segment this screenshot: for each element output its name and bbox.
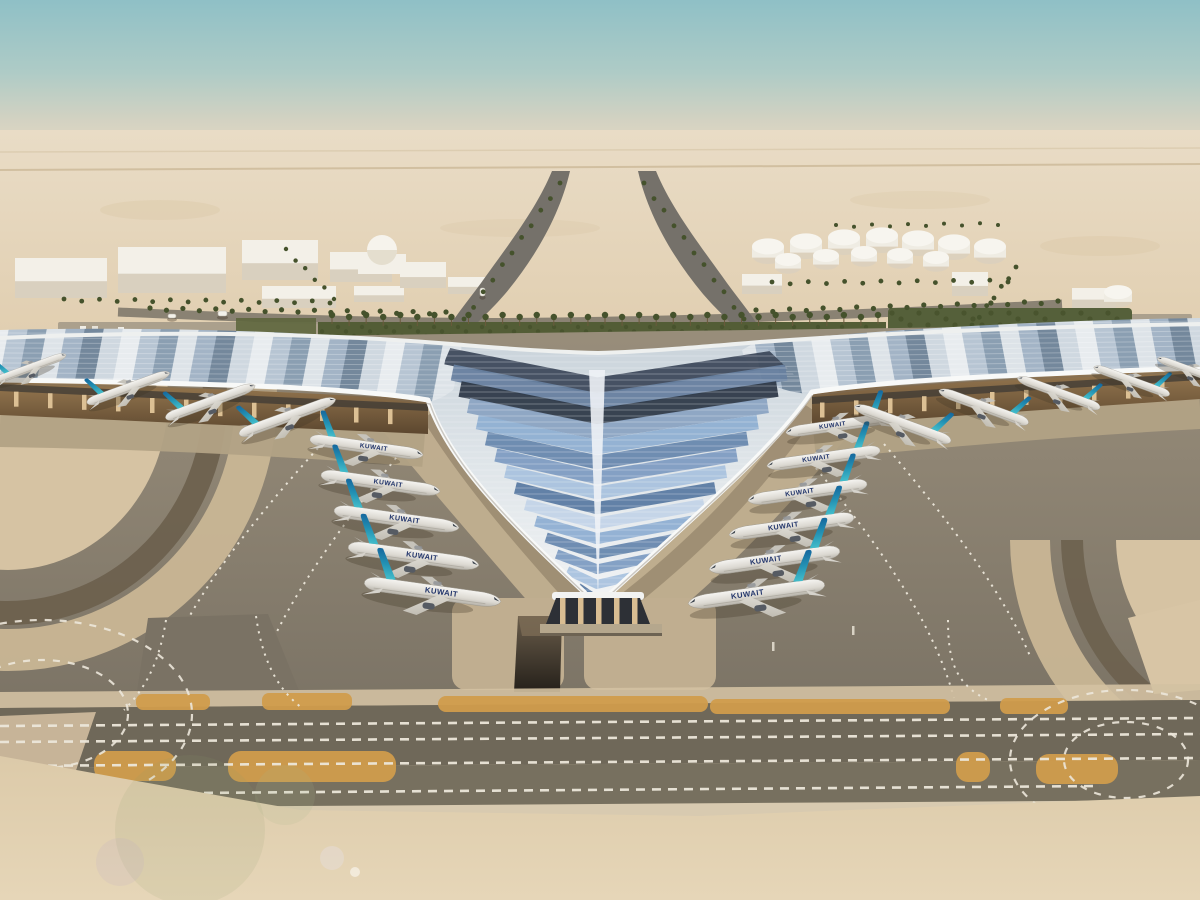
palm-tree bbox=[203, 298, 208, 303]
palm-tree bbox=[732, 305, 737, 310]
palm-tree bbox=[1022, 299, 1027, 304]
palm-tree bbox=[97, 297, 102, 302]
palm-tree bbox=[312, 308, 317, 313]
palm-tree bbox=[712, 278, 717, 283]
palm-tree bbox=[1039, 301, 1044, 306]
palm-tree bbox=[411, 309, 416, 314]
palm-tree bbox=[150, 299, 155, 304]
fuel-tank bbox=[851, 246, 877, 267]
warehouse-building bbox=[742, 274, 782, 294]
orange-taxiway-marking bbox=[262, 693, 352, 710]
palm-tree bbox=[662, 208, 667, 213]
palm-tree bbox=[221, 300, 226, 305]
service-vehicle bbox=[217, 311, 228, 320]
palm-tree bbox=[938, 304, 943, 309]
warehouse-building bbox=[15, 258, 107, 298]
palm-tree bbox=[942, 222, 946, 226]
palm-tree bbox=[481, 289, 486, 294]
palm-tree bbox=[332, 297, 336, 301]
palm-tree bbox=[328, 310, 333, 315]
palm-tree bbox=[888, 224, 892, 228]
palm-tree bbox=[310, 298, 315, 303]
palm-tree bbox=[770, 309, 775, 314]
palm-tree bbox=[687, 314, 693, 320]
orange-taxiway-marking bbox=[1000, 698, 1068, 714]
palm-tree bbox=[499, 312, 505, 318]
palm-tree bbox=[996, 223, 1000, 227]
palm-tree bbox=[824, 281, 829, 286]
palm-tree bbox=[213, 306, 218, 311]
palm-tree bbox=[653, 314, 659, 320]
fuel-tank bbox=[1104, 285, 1132, 307]
palm-tree bbox=[987, 278, 992, 283]
palm-tree bbox=[988, 300, 993, 305]
palm-tree bbox=[821, 305, 826, 310]
palm-tree bbox=[62, 297, 67, 302]
palm-tree bbox=[879, 279, 884, 284]
palm-tree bbox=[972, 303, 977, 308]
palm-tree bbox=[346, 314, 352, 320]
palm-tree bbox=[670, 312, 676, 318]
palm-tree bbox=[79, 299, 84, 304]
palm-tree bbox=[789, 314, 795, 320]
fuel-tank bbox=[887, 248, 913, 269]
palm-tree bbox=[443, 309, 448, 314]
bollard bbox=[772, 642, 775, 651]
palm-tree bbox=[414, 314, 420, 320]
palm-tree bbox=[933, 280, 938, 285]
palm-tree bbox=[239, 298, 244, 303]
palm-tree bbox=[180, 306, 185, 311]
palm-tree bbox=[787, 306, 792, 311]
canopy-column bbox=[48, 393, 53, 408]
palm-tree bbox=[133, 297, 138, 302]
palm-tree bbox=[147, 305, 152, 310]
palm-tree bbox=[842, 279, 847, 284]
palm-tree bbox=[551, 314, 557, 320]
palm-tree bbox=[742, 317, 747, 322]
palm-tree bbox=[955, 301, 960, 306]
palm-tree bbox=[984, 303, 989, 308]
palm-tree bbox=[482, 314, 488, 320]
fuel-tank bbox=[813, 249, 839, 270]
palm-tree bbox=[721, 314, 727, 320]
palm-tree bbox=[558, 181, 563, 186]
palm-tree bbox=[427, 311, 432, 316]
canopy-column bbox=[888, 398, 893, 413]
canopy-column bbox=[922, 396, 927, 411]
palm-tree bbox=[313, 278, 317, 282]
palm-tree bbox=[246, 307, 251, 312]
canopy-column bbox=[150, 398, 155, 413]
palm-tree bbox=[992, 296, 997, 301]
palm-tree bbox=[529, 223, 534, 228]
canopy-column bbox=[82, 395, 87, 410]
palm-tree bbox=[888, 303, 893, 308]
palm-tree bbox=[636, 312, 642, 318]
palm-tree bbox=[1005, 302, 1010, 307]
palm-tree bbox=[871, 306, 876, 311]
airport-rendering: Aerial rendering of a desert airport: tr… bbox=[0, 0, 1200, 900]
palm-tree bbox=[602, 312, 608, 318]
palm-tree bbox=[380, 314, 386, 320]
palm-tree bbox=[619, 314, 625, 320]
tip-plaza bbox=[540, 624, 662, 633]
palm-tree bbox=[568, 312, 574, 318]
palm-tree bbox=[755, 314, 761, 320]
palm-tree bbox=[263, 309, 268, 314]
palm-tree bbox=[672, 223, 677, 228]
orange-taxiway-marking bbox=[956, 752, 990, 782]
palm-tree bbox=[471, 305, 476, 310]
palm-tree bbox=[431, 312, 437, 318]
palm-tree bbox=[378, 309, 383, 314]
palm-tree bbox=[500, 262, 505, 267]
palm-tree bbox=[465, 312, 471, 318]
palm-tree bbox=[977, 315, 982, 320]
palm-tree bbox=[704, 312, 710, 318]
palm-tree bbox=[951, 278, 956, 283]
palm-tree bbox=[999, 284, 1004, 289]
palm-tree bbox=[292, 300, 297, 305]
palm-tree bbox=[448, 314, 454, 320]
palm-tree bbox=[303, 266, 307, 270]
palm-tree bbox=[702, 262, 707, 267]
canopy-column bbox=[820, 403, 825, 418]
palm-tree bbox=[915, 278, 920, 283]
palm-tree bbox=[1055, 298, 1060, 303]
palm-tree bbox=[257, 300, 262, 305]
warehouse-building bbox=[354, 286, 404, 302]
palm-tree bbox=[854, 304, 859, 309]
orange-taxiway-marking bbox=[710, 699, 950, 714]
palm-tree bbox=[490, 278, 495, 283]
palm-tree bbox=[924, 224, 928, 228]
palm-tree bbox=[345, 308, 350, 313]
palm-tree bbox=[510, 251, 515, 256]
palm-tree bbox=[682, 235, 687, 240]
palm-tree bbox=[824, 314, 830, 320]
palm-tree bbox=[834, 223, 838, 227]
palm-tree bbox=[168, 297, 173, 302]
palm-tree bbox=[115, 299, 120, 304]
palm-tree bbox=[394, 311, 399, 316]
palm-tree bbox=[361, 310, 366, 315]
palm-tree bbox=[538, 208, 543, 213]
palm-tree bbox=[186, 300, 191, 305]
palm-tree bbox=[841, 312, 847, 318]
palm-tree bbox=[230, 309, 235, 314]
palm-tree bbox=[585, 314, 591, 320]
service-vehicle bbox=[167, 314, 177, 322]
palm-tree bbox=[921, 302, 926, 307]
palm-tree bbox=[904, 305, 909, 310]
palm-tree bbox=[516, 314, 522, 320]
orange-taxiway-marking bbox=[438, 696, 708, 712]
canopy-column bbox=[388, 409, 393, 424]
warehouse-building bbox=[400, 262, 446, 288]
rendering-canvas: Aerial rendering of a desert airport: tr… bbox=[0, 0, 1200, 900]
palm-tree bbox=[274, 298, 279, 303]
palm-tree bbox=[858, 314, 864, 320]
palm-tree bbox=[969, 280, 974, 285]
palm-tree bbox=[462, 317, 467, 322]
palm-tree bbox=[837, 307, 842, 312]
palm-tree bbox=[284, 247, 288, 251]
palm-tree bbox=[293, 258, 297, 262]
palm-tree bbox=[534, 312, 540, 318]
palm-tree bbox=[960, 223, 964, 227]
palm-tree bbox=[322, 285, 326, 289]
palm-tree bbox=[875, 312, 881, 318]
palm-tree bbox=[870, 223, 874, 227]
palm-tree bbox=[328, 301, 333, 306]
fuel-tank bbox=[923, 251, 949, 272]
palm-tree bbox=[897, 281, 902, 286]
palm-tree bbox=[642, 181, 647, 186]
warehouse-building bbox=[242, 240, 318, 280]
bollard bbox=[852, 626, 855, 635]
orange-taxiway-marking bbox=[228, 751, 396, 782]
palm-tree bbox=[197, 308, 202, 313]
palm-tree bbox=[1006, 276, 1011, 281]
palm-tree bbox=[692, 251, 697, 256]
orange-taxiway-marking bbox=[136, 694, 210, 710]
palm-tree bbox=[548, 196, 553, 201]
palm-tree bbox=[804, 308, 809, 313]
palm-tree bbox=[279, 307, 284, 312]
palm-tree bbox=[1014, 265, 1019, 270]
palm-tree bbox=[852, 225, 856, 229]
palm-tree bbox=[860, 281, 865, 286]
palm-tree bbox=[906, 222, 910, 226]
palm-tree bbox=[652, 196, 657, 201]
palm-tree bbox=[788, 281, 793, 286]
palm-tree bbox=[295, 309, 300, 314]
palm-tree bbox=[519, 235, 524, 240]
fuel-tank bbox=[974, 238, 1006, 264]
canopy-column bbox=[354, 408, 359, 423]
canopy-column bbox=[252, 403, 257, 418]
palm-tree bbox=[770, 280, 775, 285]
warehouse-building bbox=[118, 247, 226, 293]
canopy-column bbox=[14, 392, 19, 407]
fuel-tank bbox=[775, 253, 801, 274]
palm-tree bbox=[806, 279, 811, 284]
palm-tree bbox=[753, 307, 758, 312]
palm-tree bbox=[722, 289, 727, 294]
palm-tree bbox=[164, 308, 169, 313]
palm-tree bbox=[978, 221, 982, 225]
